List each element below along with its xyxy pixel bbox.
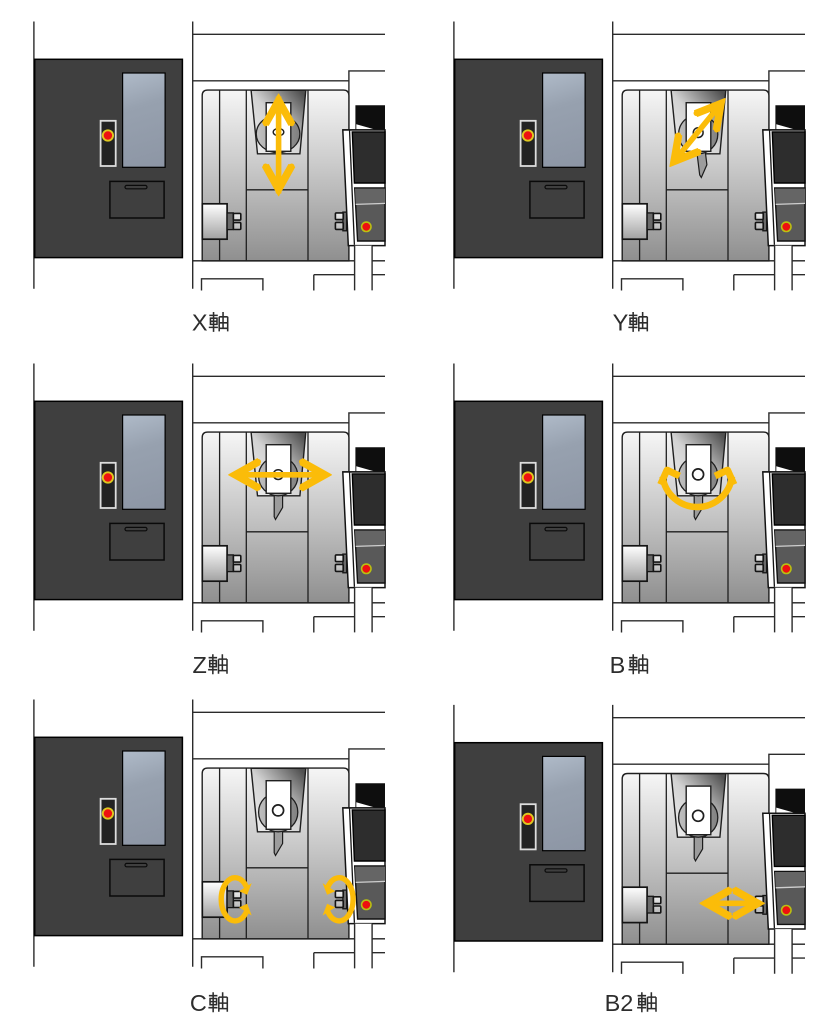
svg-text:B2: B2 (605, 990, 634, 1016)
svg-text:X: X (192, 310, 208, 336)
svg-text:B: B (610, 652, 626, 678)
svg-text:Z: Z (193, 652, 207, 678)
svg-text:Y: Y (613, 310, 629, 336)
svg-text:C: C (190, 990, 207, 1016)
